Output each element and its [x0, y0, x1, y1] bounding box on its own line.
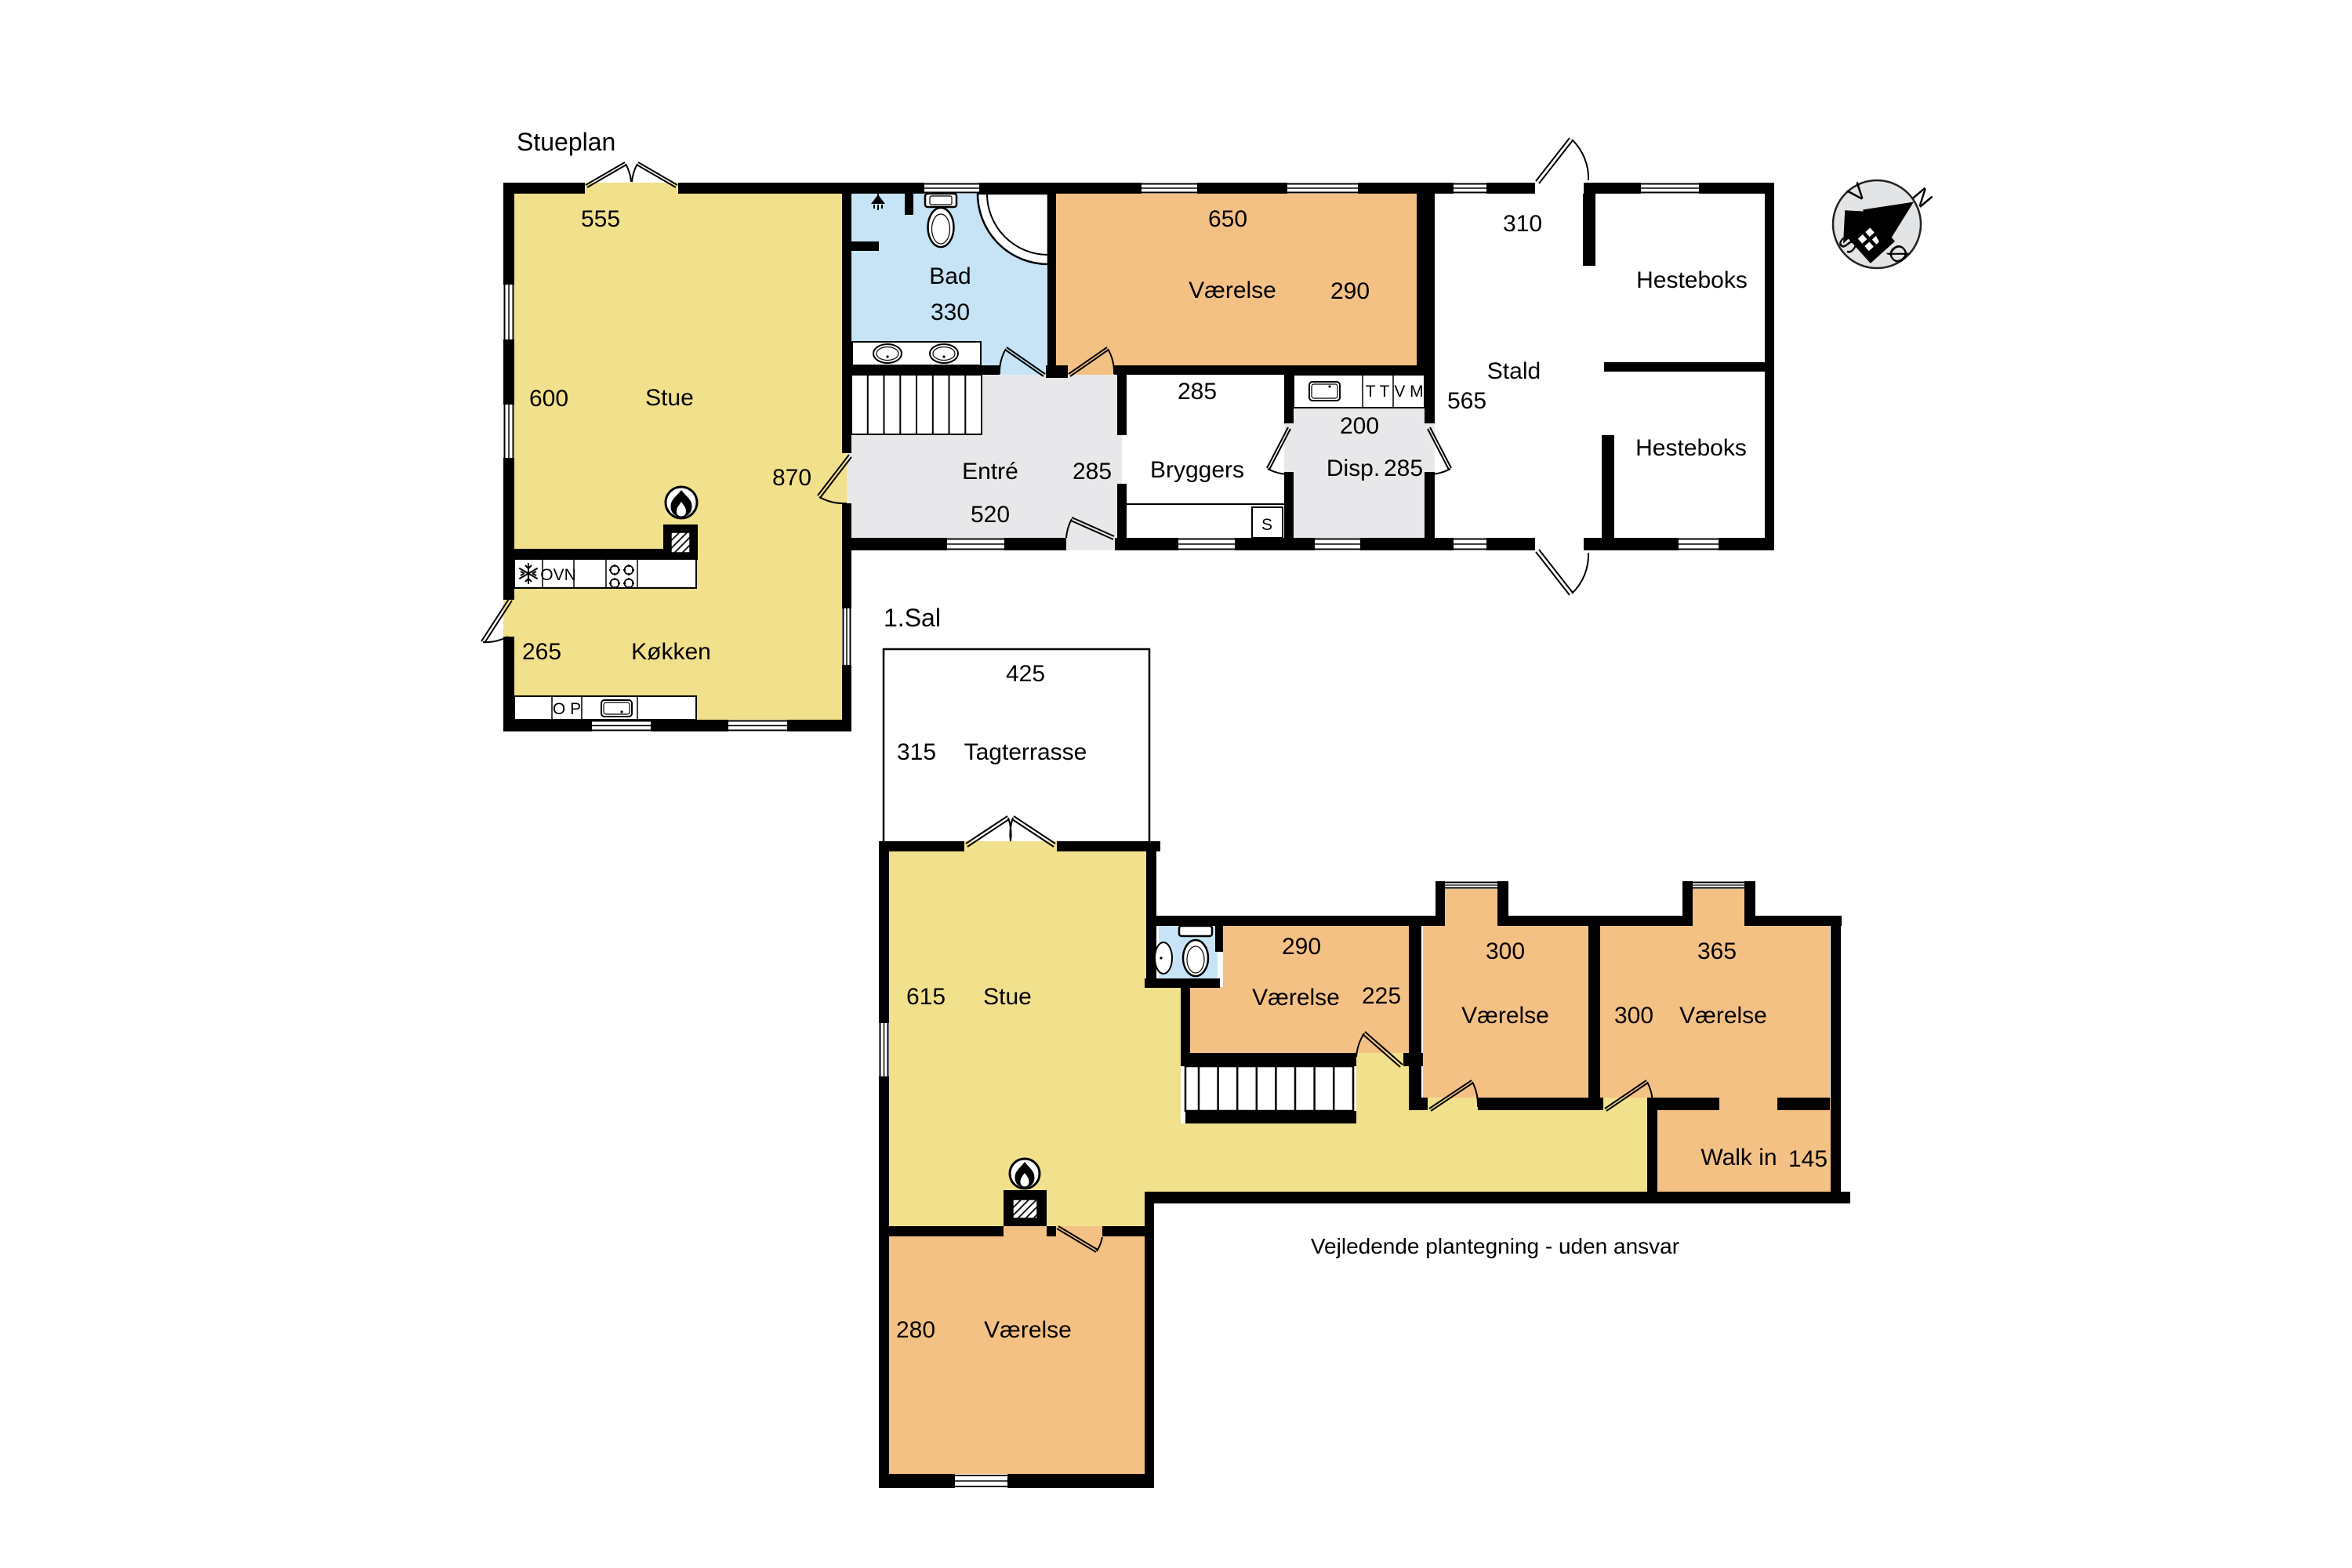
svg-text:615: 615	[906, 984, 946, 1010]
svg-text:Bryggers: Bryggers	[1150, 457, 1244, 483]
svg-text:Værelse: Værelse	[1189, 278, 1276, 303]
svg-text:365: 365	[1697, 938, 1737, 964]
svg-text:OVN: OVN	[540, 566, 576, 584]
svg-text:1.Sal: 1.Sal	[884, 604, 941, 632]
svg-text:Walk in: Walk in	[1700, 1145, 1777, 1171]
svg-text:565: 565	[1447, 388, 1486, 414]
svg-text:145: 145	[1788, 1146, 1828, 1172]
svg-text:Hesteboks: Hesteboks	[1635, 435, 1747, 461]
svg-text:600: 600	[529, 386, 568, 412]
svg-text:425: 425	[1006, 661, 1045, 687]
svg-text:S: S	[1261, 516, 1272, 534]
svg-text:Tagterrasse: Tagterrasse	[964, 739, 1087, 765]
svg-text:Værelse: Værelse	[1461, 1003, 1549, 1029]
svg-text:315: 315	[897, 739, 936, 765]
svg-text:300: 300	[1486, 938, 1525, 964]
svg-text:Værelse: Værelse	[1679, 1003, 1767, 1029]
svg-text:Værelse: Værelse	[984, 1317, 1072, 1343]
svg-text:280: 280	[896, 1317, 935, 1343]
svg-text:Stue: Stue	[645, 385, 694, 411]
svg-text:225: 225	[1362, 983, 1401, 1009]
svg-text:520: 520	[971, 502, 1010, 528]
svg-text:285: 285	[1073, 459, 1112, 485]
svg-text:300: 300	[1614, 1003, 1653, 1029]
svg-text:285: 285	[1178, 379, 1217, 405]
svg-text:Entré: Entré	[962, 459, 1018, 485]
svg-text:330: 330	[931, 299, 970, 325]
svg-text:Stueplan: Stueplan	[517, 128, 615, 156]
svg-text:265: 265	[522, 639, 561, 665]
svg-text:555: 555	[581, 206, 620, 232]
svg-text:T T: T T	[1366, 383, 1390, 401]
svg-text:310: 310	[1503, 211, 1542, 237]
svg-text:290: 290	[1330, 278, 1370, 304]
svg-text:Disp.: Disp.	[1327, 456, 1380, 481]
svg-text:O P: O P	[553, 700, 581, 718]
svg-text:200: 200	[1340, 413, 1379, 439]
svg-text:285: 285	[1384, 456, 1423, 481]
svg-text:V M: V M	[1394, 383, 1423, 401]
svg-text:Bad: Bad	[929, 263, 971, 289]
svg-text:Stue: Stue	[983, 984, 1032, 1010]
svg-text:650: 650	[1208, 206, 1247, 232]
svg-text:Værelse: Værelse	[1252, 985, 1340, 1011]
svg-text:Køkken: Køkken	[631, 639, 711, 665]
svg-text:870: 870	[772, 465, 811, 491]
svg-text:Stald: Stald	[1487, 358, 1541, 384]
svg-text:290: 290	[1282, 934, 1321, 960]
svg-text:Hesteboks: Hesteboks	[1636, 267, 1748, 293]
svg-text:Vejledende plantegning - uden: Vejledende plantegning - uden ansvar	[1311, 1234, 1679, 1258]
